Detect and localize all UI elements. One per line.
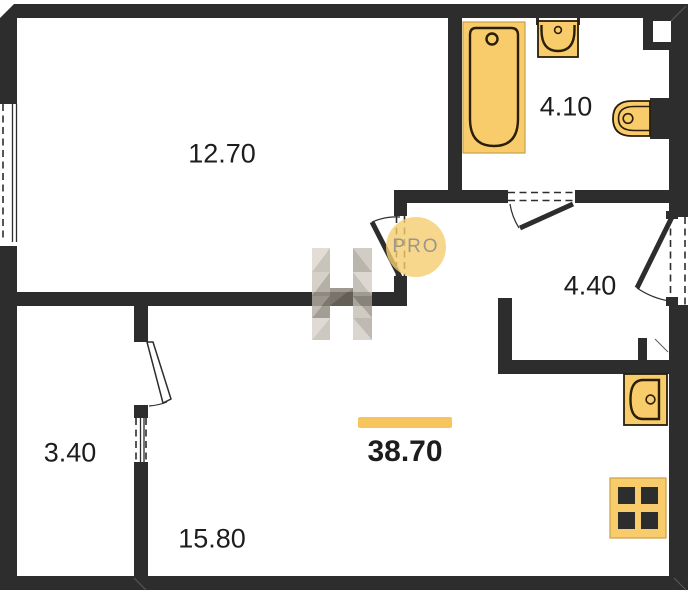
balcony-door [147, 342, 171, 406]
bathtub [463, 22, 525, 153]
top-wall [0, 4, 688, 18]
balcony-wall-bottom [134, 462, 148, 576]
door-leaf [637, 217, 672, 288]
balcony-wall-top [134, 292, 148, 342]
room-area-bathroom: 4.10 [540, 92, 593, 123]
bathroom-door [508, 193, 575, 229]
bathroom-bottom-wall-right [575, 190, 688, 203]
duct-stub [638, 338, 647, 360]
door-swing-arc [510, 204, 519, 228]
total-area-accent-bar [358, 417, 452, 428]
vent-shaft-opening [653, 21, 671, 42]
left-wall-upper [0, 4, 17, 104]
toilet-tank [650, 98, 671, 139]
watermark-pro-text: PRO [392, 236, 439, 258]
stove [610, 478, 666, 538]
bathroom-left-wall [448, 17, 462, 192]
interior-door-jamb-top [394, 203, 407, 216]
hallway-wall-horizontal [498, 360, 688, 374]
entrance-door [637, 217, 685, 305]
door-swing-arc [149, 402, 167, 406]
door-leaf [520, 204, 573, 228]
watermark-h-logo [312, 248, 372, 340]
room-area-kitchen-living: 15.80 [178, 524, 246, 555]
right-wall-lower [669, 305, 688, 590]
bottom-wall [0, 576, 688, 590]
entrance-jamb-bottom [666, 297, 678, 306]
stove-burner [618, 512, 635, 529]
room-area-hallway: 4.40 [564, 271, 617, 302]
room-area-living-room: 12.70 [188, 139, 256, 170]
balcony-window [136, 418, 146, 462]
bathroom-bottom-wall-left [394, 190, 508, 203]
total-area-label: 38.70 [367, 435, 442, 469]
left-window [3, 104, 17, 242]
door-leaf [147, 342, 171, 403]
washbasin [536, 16, 580, 57]
door-swing-arc [637, 288, 669, 301]
balcony-wall-mullion [134, 405, 148, 418]
floor-plan: 12.70 4.10 4.40 3.40 15.80 38.70 PRO [0, 0, 688, 600]
kitchen-sink [624, 374, 667, 425]
right-wall-upper [669, 4, 688, 217]
room-area-balcony: 3.40 [44, 438, 97, 469]
toilet [613, 98, 671, 139]
stove-burner [641, 487, 658, 504]
stove-burner [618, 487, 635, 504]
stove-burner [641, 512, 658, 529]
